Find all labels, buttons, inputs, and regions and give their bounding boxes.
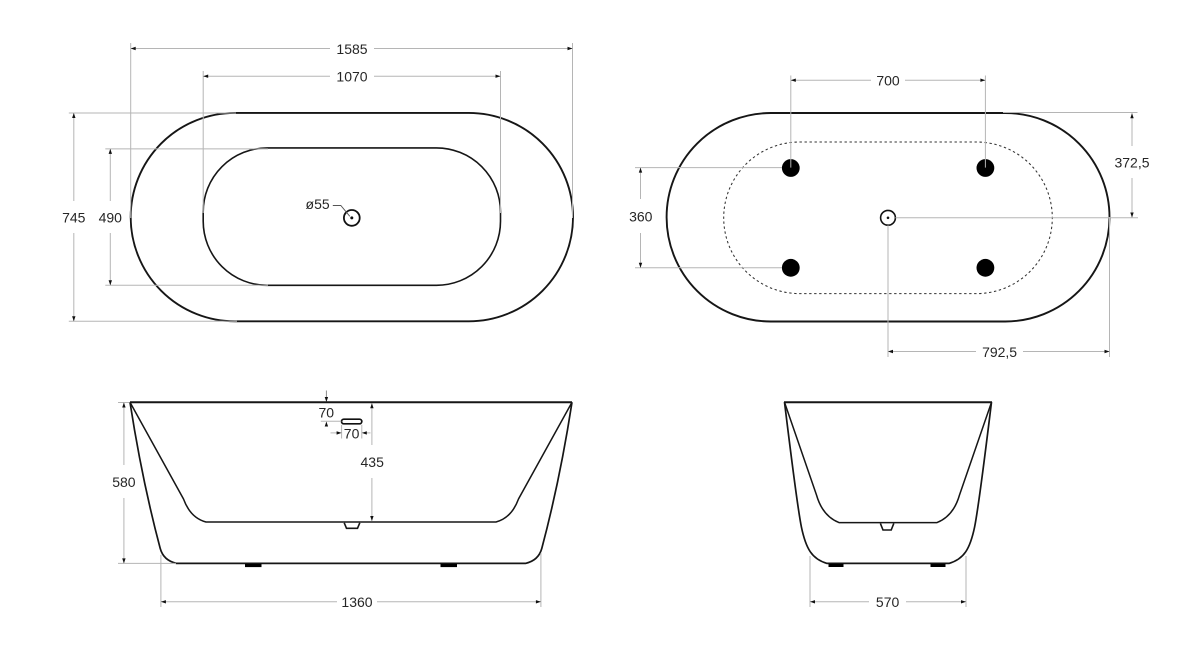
svg-text:372,5: 372,5 xyxy=(1114,154,1149,170)
svg-text:435: 435 xyxy=(361,454,385,470)
svg-text:ø55: ø55 xyxy=(306,196,330,212)
svg-text:1360: 1360 xyxy=(341,594,372,610)
svg-text:792,5: 792,5 xyxy=(982,344,1017,360)
svg-text:360: 360 xyxy=(629,209,653,225)
svg-text:1585: 1585 xyxy=(336,41,367,57)
svg-text:70: 70 xyxy=(344,425,360,441)
svg-text:580: 580 xyxy=(112,474,136,490)
svg-text:745: 745 xyxy=(62,209,86,225)
svg-text:570: 570 xyxy=(876,594,900,610)
svg-text:700: 700 xyxy=(876,73,900,89)
svg-text:490: 490 xyxy=(99,209,123,225)
svg-text:70: 70 xyxy=(319,405,335,421)
svg-text:1070: 1070 xyxy=(336,69,367,85)
